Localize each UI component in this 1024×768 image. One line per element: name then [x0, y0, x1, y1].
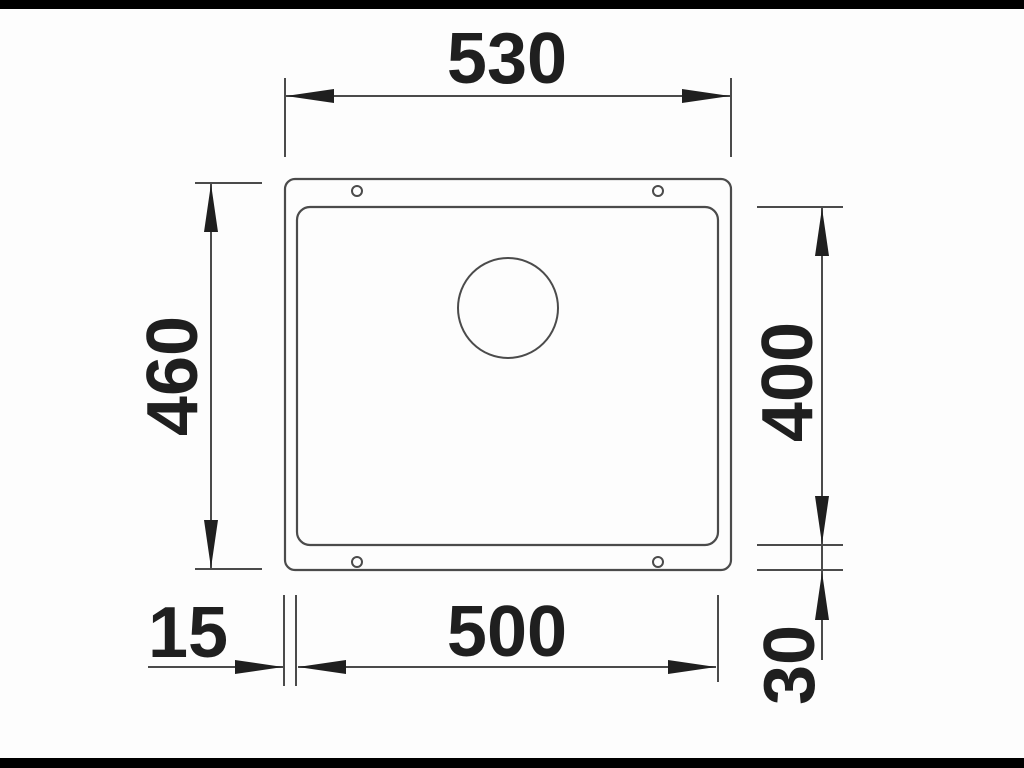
mounting-hole-bottom-right [653, 557, 663, 567]
dim-400-arrow-top [815, 208, 829, 256]
sink-technical-drawing: 530 460 400 30 [0, 0, 1024, 768]
drain-hole [458, 258, 558, 358]
dim-label-left-height: 460 [133, 316, 213, 436]
mounting-hole-top-right [653, 186, 663, 196]
dim-left-height-group: 460 [133, 183, 262, 569]
dim-label-bottom-right-offset: 30 [750, 625, 830, 705]
dim-bottom-group: 15 500 [148, 592, 718, 686]
dim-15-arrow-right [235, 660, 283, 674]
dim-30-arrow-up [815, 572, 829, 620]
mounting-hole-top-left [352, 186, 362, 196]
dim-top-width-group: 530 [285, 19, 731, 157]
dim-530-arrow-right [682, 89, 730, 103]
dim-label-top-width: 530 [447, 19, 567, 99]
dim-label-bottom-width: 500 [447, 592, 567, 672]
mounting-hole-bottom-left [352, 557, 362, 567]
dim-530-arrow-left [286, 89, 334, 103]
dim-right-height-group: 400 [748, 207, 843, 545]
drawing-page: 530 460 400 30 [0, 0, 1024, 768]
dim-460-arrow-bottom [204, 520, 218, 568]
outer-rim-outline [285, 179, 731, 570]
dim-bottom-right-offset-group: 30 [750, 545, 843, 705]
dim-460-arrow-top [204, 184, 218, 232]
dim-500-arrow-right [668, 660, 716, 674]
dim-400-arrow-bottom [815, 496, 829, 544]
dim-label-bottom-left-offset: 15 [148, 593, 228, 673]
dim-label-right-height: 400 [748, 322, 828, 442]
sink-outline-group [285, 179, 731, 570]
dim-500-arrow-left [298, 660, 346, 674]
